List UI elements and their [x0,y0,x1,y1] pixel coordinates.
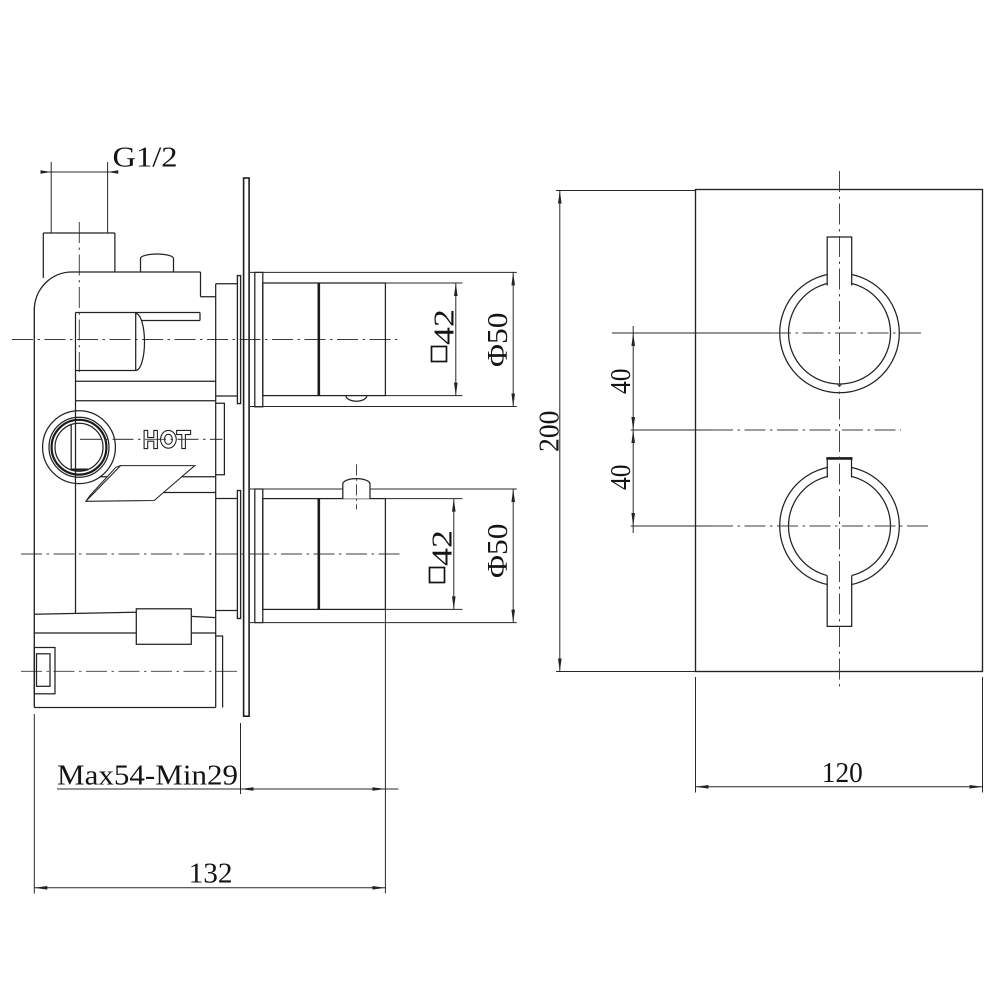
svg-text:42: 42 [427,530,459,566]
svg-text:40: 40 [605,369,637,395]
svg-text:200: 200 [534,411,566,453]
svg-text:132: 132 [189,858,233,890]
svg-text:Max54-Min29: Max54-Min29 [57,760,238,792]
svg-text:42: 42 [429,309,461,345]
svg-text:Φ50: Φ50 [482,524,514,579]
svg-text:40: 40 [605,465,637,491]
svg-text:G1/2: G1/2 [113,142,178,174]
svg-text:120: 120 [822,757,863,789]
svg-text:Φ50: Φ50 [482,313,514,368]
